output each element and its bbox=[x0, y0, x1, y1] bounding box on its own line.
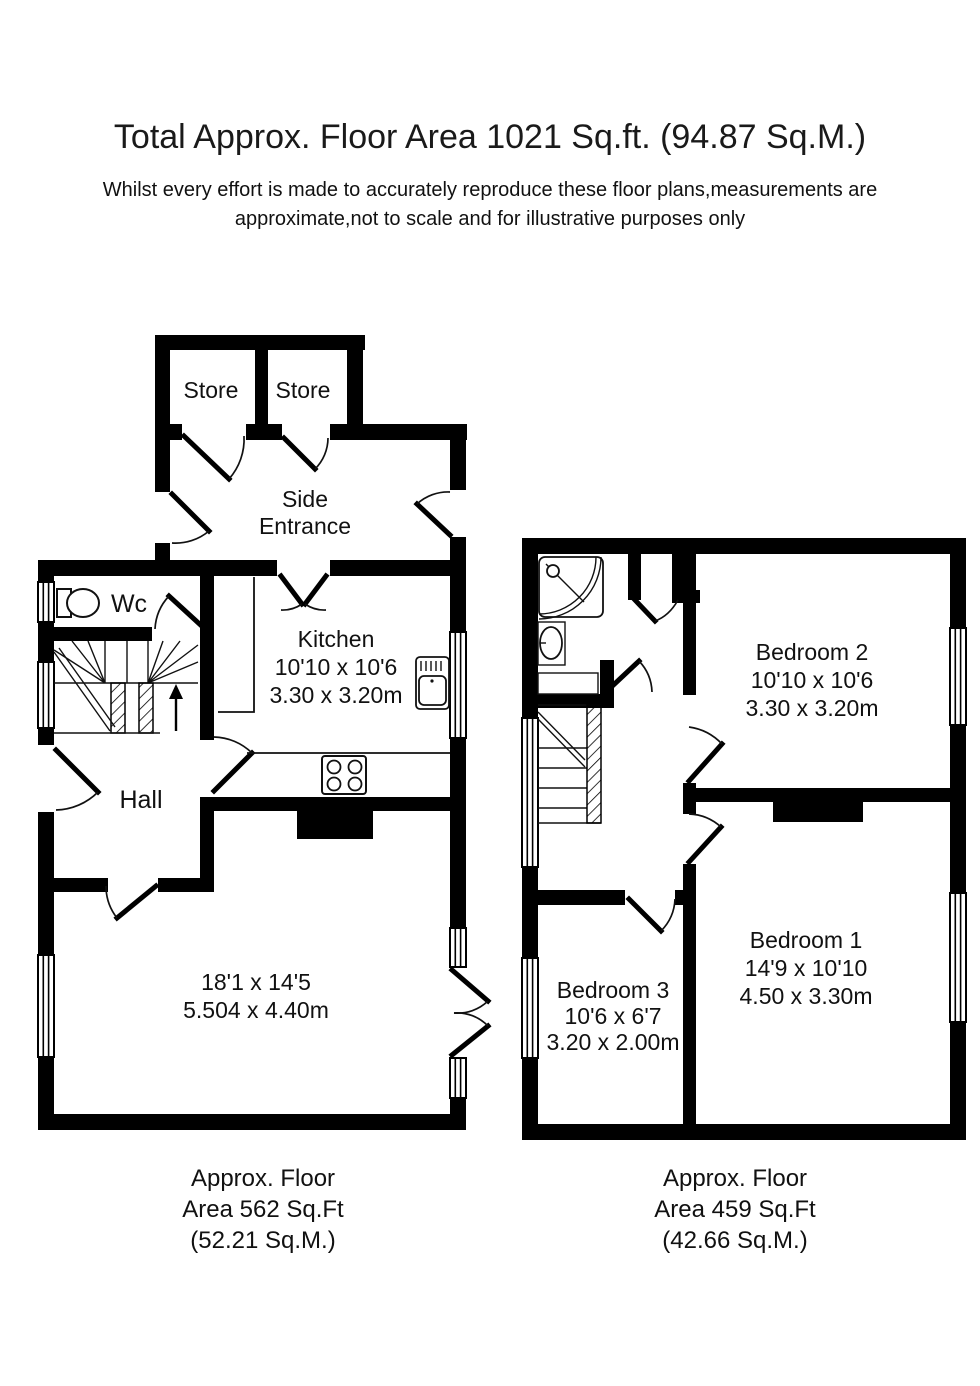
bedroom-1-dims-imperial: 14'9 x 10'10 bbox=[745, 955, 868, 981]
french-doors bbox=[452, 970, 488, 1055]
front-door bbox=[56, 750, 98, 810]
kitchen-window bbox=[450, 632, 466, 738]
ground-area-line1: Approx. Floor bbox=[103, 1163, 423, 1194]
side-entrance-left-door bbox=[172, 494, 209, 543]
kitchen-dims-imperial: 10'10 x 10'6 bbox=[275, 654, 398, 680]
staircase-up bbox=[54, 641, 198, 733]
wc-window bbox=[38, 582, 54, 622]
chimney-breast-first bbox=[773, 802, 863, 822]
living-dims-imperial: 18'1 x 14'5 bbox=[201, 969, 311, 995]
bedroom-2-window bbox=[950, 628, 966, 725]
bedroom-2-door bbox=[689, 727, 722, 781]
first-area-line3: (42.66 Sq.M.) bbox=[575, 1225, 895, 1256]
bedroom-1-dims-metric: 4.50 x 3.30m bbox=[740, 983, 873, 1009]
side-entrance-label-line1: Side bbox=[282, 486, 328, 512]
store-1-door bbox=[184, 436, 244, 479]
hob-icon bbox=[322, 756, 366, 794]
bedroom-3-window bbox=[522, 958, 538, 1058]
cupboard-door bbox=[635, 600, 678, 621]
side-entrance-right-door bbox=[417, 492, 450, 535]
bedroom-1-label: Bedroom 1 bbox=[750, 927, 863, 953]
bathroom-vanity bbox=[538, 673, 598, 694]
hall-to-living-door bbox=[106, 886, 156, 918]
chimney-breast-ground bbox=[297, 811, 373, 839]
stairs-up-arrow bbox=[169, 684, 183, 731]
staircase-down bbox=[538, 705, 601, 823]
wc-label: Wc bbox=[111, 590, 147, 618]
kitchen-dims-metric: 3.30 x 3.20m bbox=[270, 682, 403, 708]
living-room-left-window bbox=[38, 955, 54, 1057]
kitchen-label: Kitchen bbox=[298, 626, 375, 652]
wc-door bbox=[155, 596, 205, 629]
first-area-line2: Area 459 Sq.Ft bbox=[575, 1194, 895, 1225]
bedroom-3-door bbox=[629, 899, 675, 931]
kitchen-sink-icon bbox=[416, 657, 449, 709]
landing-window bbox=[522, 718, 538, 867]
floorplan-page: Total Approx. Floor Area 1021 Sq.ft. (94… bbox=[0, 0, 980, 1386]
bedroom-1-window bbox=[950, 893, 966, 1022]
basin-icon bbox=[538, 622, 565, 665]
bedroom-1-door bbox=[689, 814, 721, 862]
ground-floor-plan: Store Store Side Entrance Wc Kitchen 10'… bbox=[38, 335, 488, 1130]
bedroom-2-dims-imperial: 10'10 x 10'6 bbox=[751, 667, 874, 693]
store-2-label: Store bbox=[276, 377, 331, 403]
living-room-sidelight-bottom bbox=[450, 1058, 466, 1098]
ground-area-line2: Area 562 Sq.Ft bbox=[103, 1194, 423, 1225]
bedroom-2-dims-metric: 3.30 x 3.20m bbox=[746, 695, 879, 721]
stairs-window bbox=[38, 662, 54, 728]
hall-label: Hall bbox=[119, 786, 162, 814]
side-entrance-label-line2: Entrance bbox=[259, 513, 351, 539]
first-floor-plan: Bedroom 2 10'10 x 10'6 3.30 x 3.20m Bedr… bbox=[522, 538, 966, 1140]
kitchen-to-side-entrance-doors bbox=[281, 576, 326, 610]
toilet-icon bbox=[57, 589, 99, 617]
first-floor-area-label: Approx. Floor Area 459 Sq.Ft (42.66 Sq.M… bbox=[575, 1163, 895, 1256]
first-area-line1: Approx. Floor bbox=[575, 1163, 895, 1194]
bedroom-3-dims-imperial: 10'6 x 6'7 bbox=[564, 1003, 661, 1029]
ground-floor-area-label: Approx. Floor Area 562 Sq.Ft (52.21 Sq.M… bbox=[103, 1163, 423, 1256]
store-2-door bbox=[284, 438, 328, 469]
ground-area-line3: (52.21 Sq.M.) bbox=[103, 1225, 423, 1256]
living-dims-metric: 5.504 x 4.40m bbox=[183, 997, 329, 1023]
hall-to-kitchen-door bbox=[214, 737, 252, 791]
store-1-label: Store bbox=[184, 377, 239, 403]
bedroom-3-dims-metric: 3.20 x 2.00m bbox=[547, 1029, 680, 1055]
bedroom-3-label: Bedroom 3 bbox=[557, 977, 670, 1003]
living-room-sidelight-top bbox=[450, 928, 466, 967]
shower-icon bbox=[539, 557, 603, 619]
bedroom-2-label: Bedroom 2 bbox=[756, 639, 869, 665]
